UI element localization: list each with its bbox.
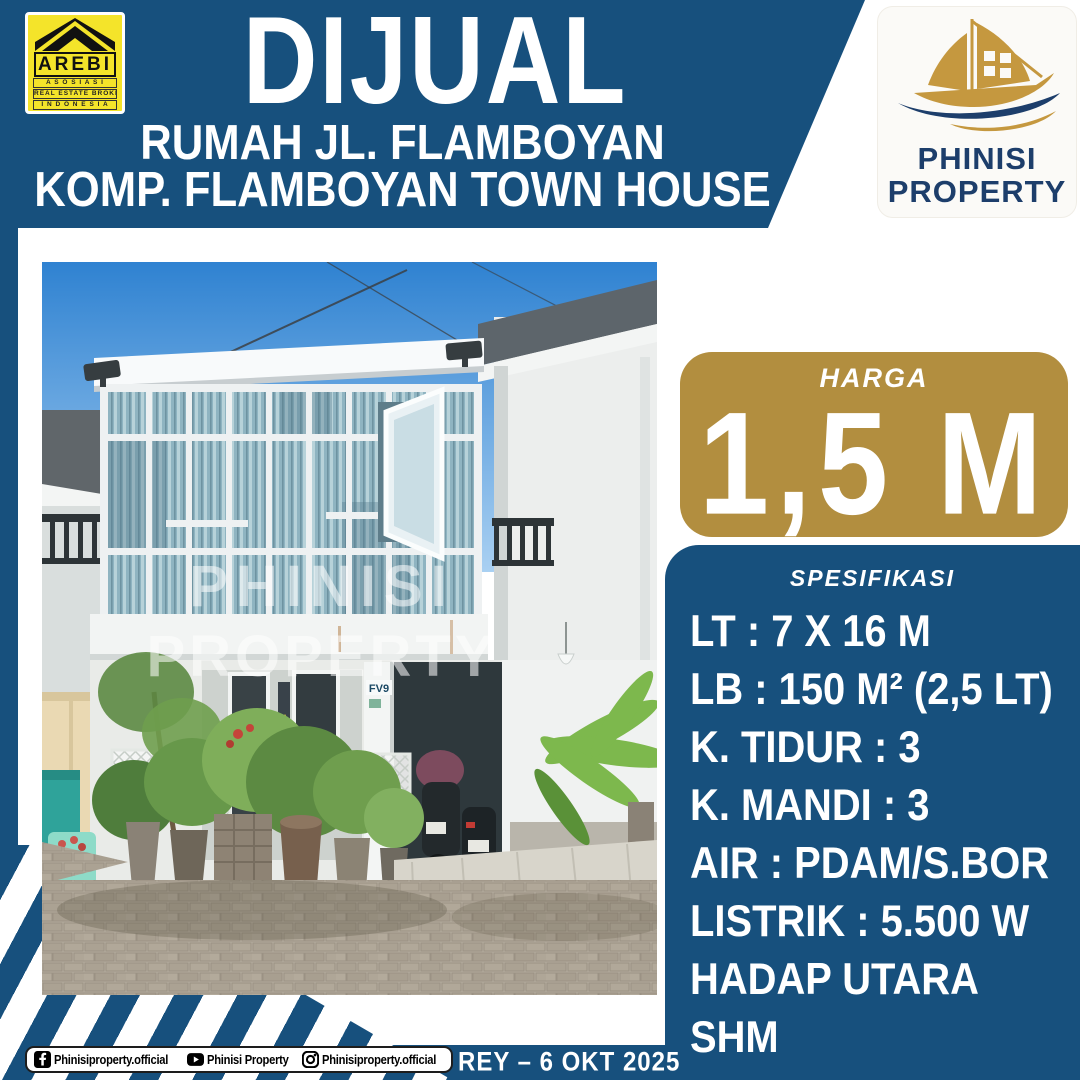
spec-heading: SPESIFIKASI bbox=[665, 565, 1080, 592]
spec-item-facing: HADAP UTARA bbox=[690, 948, 1061, 1009]
agent-and-date: REY – 6 OKT 2025 bbox=[458, 1047, 668, 1078]
phinisi-property-logo: PHINISI PROPERTY bbox=[877, 6, 1077, 218]
youtube-icon bbox=[187, 1051, 204, 1068]
property-subtitle-line2: KOMP. FLAMBOYAN TOWN HOUSE bbox=[27, 164, 779, 215]
facebook-icon bbox=[34, 1051, 51, 1068]
phinisi-ship-icon bbox=[884, 11, 1070, 137]
instagram-icon bbox=[302, 1051, 319, 1068]
facebook-entry: Phinisiproperty.official bbox=[34, 1051, 187, 1068]
arebi-logo-line1: A S O S I A S I bbox=[33, 78, 117, 88]
spec-list: LT : 7 X 16 M LB : 150 M² (2,5 LT) K. TI… bbox=[665, 602, 1080, 1066]
spec-item-electricity: LISTRIK : 5.500 W bbox=[690, 890, 1061, 951]
social-media-pill: Phinisiproperty.official Phinisi Propert… bbox=[25, 1046, 453, 1073]
phinisi-logo-name-line1: PHINISI bbox=[878, 142, 1076, 175]
property-photo: FV9 bbox=[42, 262, 657, 995]
arebi-logo-title: AREBI bbox=[34, 52, 116, 77]
instagram-handle: Phinisiproperty.official bbox=[322, 1052, 436, 1067]
facebook-handle: Phinisiproperty.official bbox=[54, 1052, 168, 1067]
spec-item-water: AIR : PDAM/S.BOR bbox=[690, 832, 1061, 893]
phinisi-logo-name-line2: PROPERTY bbox=[878, 175, 1076, 208]
youtube-handle: Phinisi Property bbox=[207, 1052, 289, 1067]
flyer-canvas: DIJUAL RUMAH JL. FLAMBOYAN KOMP. FLAMBOY… bbox=[0, 0, 1080, 1080]
specification-panel: SPESIFIKASI LT : 7 X 16 M LB : 150 M² (2… bbox=[665, 545, 1080, 1080]
spec-item-lt: LT : 7 X 16 M bbox=[690, 600, 1061, 661]
arebi-logo: AREBI A S O S I A S I REAL ESTATE BROKER… bbox=[25, 12, 125, 114]
instagram-entry: Phinisiproperty.official bbox=[302, 1051, 455, 1068]
svg-text:PHINISI: PHINISI bbox=[189, 554, 455, 619]
price-card: HARGA 1,5 M bbox=[680, 352, 1068, 537]
spec-item-bedrooms: K. TIDUR : 3 bbox=[690, 716, 1061, 777]
spec-item-certificate: SHM bbox=[690, 1006, 1061, 1067]
spec-item-lb: LB : 150 M² (2,5 LT) bbox=[690, 658, 1061, 719]
arebi-roof-icon bbox=[32, 18, 118, 52]
youtube-entry: Phinisi Property bbox=[187, 1051, 302, 1068]
sale-title: DIJUAL bbox=[179, 0, 692, 123]
arebi-logo-line4: DPD SULAWESI SELATAN bbox=[31, 111, 119, 114]
svg-text:PROPERTY: PROPERTY bbox=[146, 624, 497, 689]
arebi-logo-line3: I N D O N E S I A bbox=[33, 100, 117, 110]
spec-item-bathrooms: K. MANDI : 3 bbox=[690, 774, 1061, 835]
arebi-logo-line2: REAL ESTATE BROKER bbox=[33, 89, 117, 99]
price-value: 1,5 M bbox=[680, 393, 1068, 535]
